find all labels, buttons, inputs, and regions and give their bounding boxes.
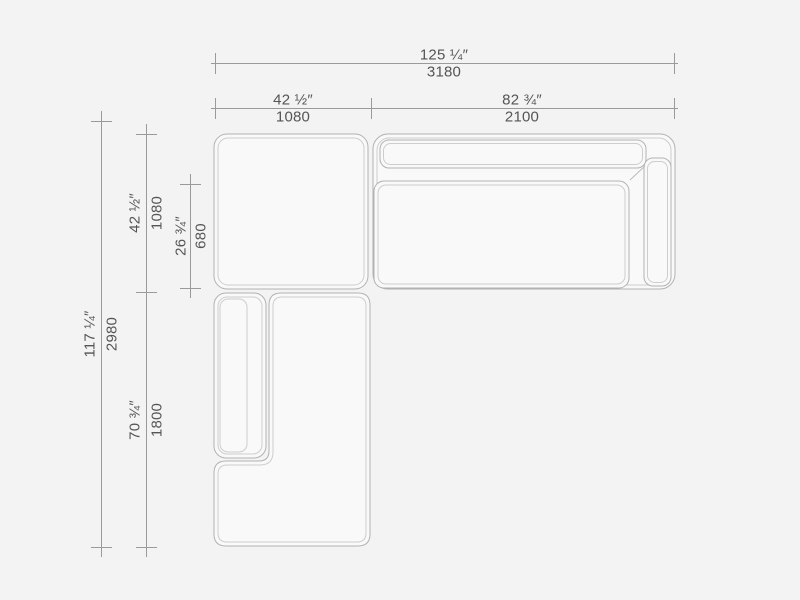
dim-line-seat-depth — [190, 174, 191, 298]
dim-tick — [136, 134, 157, 135]
dim-label-chaise-length-inches: 70 ¾″ — [128, 400, 143, 440]
dim-tick — [136, 547, 157, 548]
dim-label-overall-width-mm: 3180 — [427, 65, 461, 80]
ottoman-module — [214, 134, 368, 289]
ottoman-outline — [214, 134, 368, 289]
dim-tick — [180, 288, 201, 289]
right-sofa-module — [373, 134, 675, 289]
dim-tick — [674, 53, 675, 74]
dim-label-right-width-mm: 2100 — [505, 110, 539, 125]
dim-line-module-depths — [146, 124, 147, 557]
dim-label-chaise-length-mm: 1800 — [150, 403, 165, 437]
dim-tick — [674, 98, 675, 119]
dim-tick — [215, 53, 216, 74]
dim-label-right-width-inches: 82 ¾″ — [502, 93, 542, 108]
dim-tick — [180, 184, 201, 185]
dim-label-overall-width-inches: 125 ¼″ — [420, 48, 468, 63]
seat-cushion — [374, 181, 629, 288]
dim-label-overall-depth-mm: 2980 — [105, 317, 120, 351]
dimension-drawing-canvas: 125 ¼″ 3180 42 ½″ 1080 82 ¾″ 2100 117 ¼″… — [0, 0, 800, 600]
dim-label-overall-depth-inches: 117 ¼″ — [83, 310, 98, 357]
dim-tick — [136, 292, 157, 293]
dim-line-overall-depth — [101, 111, 102, 557]
dim-label-ottoman-depth-inches: 42 ½″ — [128, 193, 143, 233]
dim-label-seat-depth-inches: 26 ¾″ — [174, 216, 189, 256]
chaise-module — [214, 293, 370, 546]
chaise-armrest-cushion — [214, 293, 266, 458]
right-armrest-cushion — [644, 158, 671, 286]
dim-label-left-width-mm: 1080 — [276, 110, 310, 125]
dim-label-ottoman-depth-mm: 1080 — [150, 196, 165, 230]
dim-tick — [91, 547, 112, 548]
dim-label-left-width-inches: 42 ½″ — [273, 93, 313, 108]
dim-tick — [91, 121, 112, 122]
sofa-plan-view — [0, 0, 800, 600]
backrest-cushion — [380, 140, 646, 168]
dim-tick — [371, 98, 372, 119]
dim-tick — [215, 98, 216, 119]
dim-label-seat-depth-mm: 680 — [194, 223, 209, 249]
